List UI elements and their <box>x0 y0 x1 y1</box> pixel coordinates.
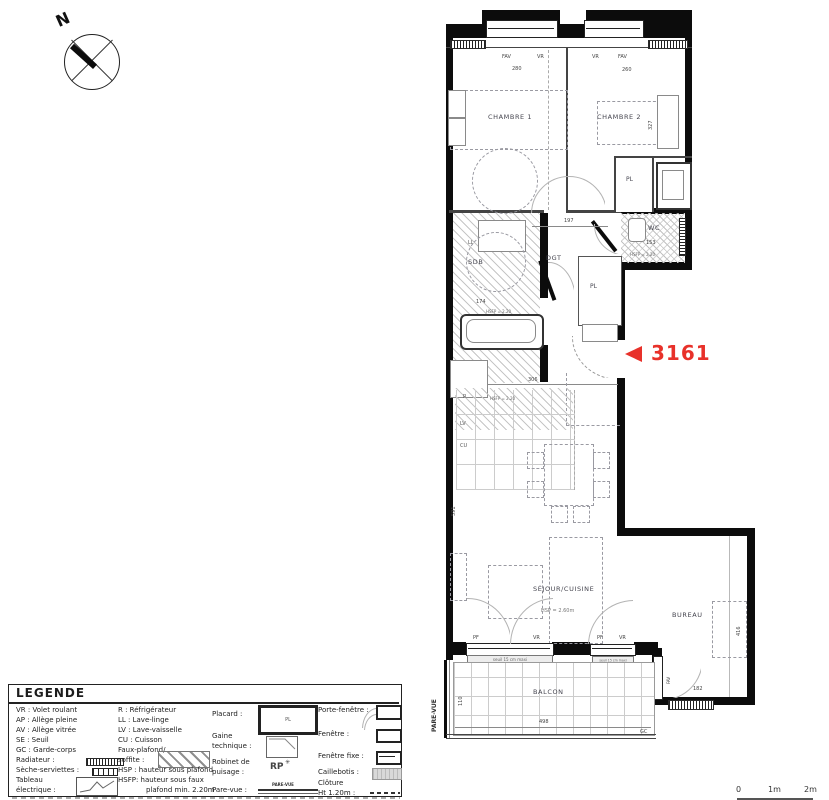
legend-item: Caillebotis : <box>318 768 359 776</box>
appliance-ll: LL <box>468 240 474 246</box>
truncated-note-line <box>12 797 400 799</box>
radiator <box>668 700 714 710</box>
room-label-balcon: BALCON <box>533 688 564 696</box>
furniture-outline <box>448 118 466 146</box>
legend-title-rule <box>9 702 399 704</box>
legend-item: technique : <box>212 742 252 750</box>
window-tag-vr: VR <box>592 54 599 60</box>
closet-pl-hall-label: PL <box>590 283 597 290</box>
wall-sdb-right <box>540 345 548 382</box>
caillebotis-symbol <box>372 768 402 780</box>
window-tag-fav: FAV <box>502 54 511 60</box>
pare-vue-symbol-line <box>258 793 318 794</box>
fenetre-symbol <box>376 729 402 743</box>
rp-valve-icon: ✳ <box>285 759 290 766</box>
partition-pl <box>652 158 654 212</box>
hsfp-note: HSFP = 2.20 <box>630 252 655 257</box>
closet-pl-top <box>616 158 652 212</box>
towel-radiator-symbol <box>92 768 118 776</box>
legend-item: puisage : <box>212 768 244 776</box>
room-label-dgt: DGT <box>546 254 562 262</box>
porte-fenetre-symbol <box>376 705 402 720</box>
lot-marker-arrow-icon <box>625 346 642 362</box>
dim-line <box>455 727 651 728</box>
roller-shutter-box <box>450 40 486 49</box>
legend-item: AP : Allège pleine <box>16 716 77 724</box>
window-glass-line <box>592 648 632 649</box>
door-arc <box>594 224 626 254</box>
dim-wc: 153 <box>646 240 656 246</box>
roller-shutter-box <box>648 40 688 49</box>
legend-item: AV : Allège vitrée <box>16 726 76 734</box>
scale-1m: 1m <box>768 785 781 794</box>
balcony-edge <box>446 734 656 735</box>
appliance-cu: CU <box>460 443 467 449</box>
floor-plan-page: { "compass": { "north": "N" }, "marker":… <box>0 0 829 800</box>
cloture-symbol <box>370 792 400 794</box>
compass-north-label: N <box>53 8 73 31</box>
compass: N <box>48 8 124 88</box>
scale-0: 0 <box>736 785 741 794</box>
legend-title: LEGENDE <box>16 686 85 700</box>
wc-toilet <box>628 218 646 242</box>
legend-item: Placard : <box>212 710 242 718</box>
furniture-tv <box>450 553 467 601</box>
bathtub-inner <box>466 319 536 343</box>
appliance-r: R <box>463 394 466 400</box>
pare-vue-line <box>449 660 450 738</box>
dim-line <box>532 226 608 227</box>
hsfp-note: HSFP = 2.20 <box>490 396 515 401</box>
window-chambre2 <box>584 20 644 38</box>
window-glass-line <box>468 648 550 649</box>
scale-2m: 2m <box>804 785 817 794</box>
legend-item: R : Réfrigérateur <box>118 706 176 714</box>
window-chambre1 <box>486 20 558 38</box>
legend-item: Pare-vue : <box>212 786 247 794</box>
balcony-floor <box>453 662 655 736</box>
furniture-chair <box>573 506 590 523</box>
pare-vue-label: PARE-VUE <box>431 668 438 732</box>
window-dim: 260 <box>622 67 632 73</box>
legend-item: soffite : <box>118 756 144 764</box>
dim-bureau-desk: 416 <box>736 616 742 636</box>
turning-circle <box>472 148 538 214</box>
gaine-notch-icon <box>267 737 297 757</box>
room-label-sejour: SÉJOUR/CUISINE <box>533 585 594 593</box>
window-tag-fav: FAV <box>618 54 627 60</box>
door-arc <box>548 262 574 300</box>
legend-item: LV : Lave-vaisselle <box>118 726 182 734</box>
bureau-window-tag: FAV <box>666 668 671 684</box>
dim-sejour: 591 <box>451 494 457 516</box>
legend-item: Tableau <box>16 776 43 784</box>
pare-vue-symbol-line <box>258 789 318 791</box>
dim-balcon-h: 110 <box>458 690 464 706</box>
dim-balcon-w: 498 <box>539 719 549 725</box>
lot-number: 3161 <box>651 341 711 365</box>
legend-item: Ht 1.20m : <box>318 789 355 797</box>
furniture-table <box>544 444 594 506</box>
room-label-wc: WC <box>648 224 660 232</box>
pare-vue-symbol: PARE-VUE <box>258 783 318 795</box>
legend-item: LL : Lave-linge <box>118 716 169 724</box>
wall-south <box>446 642 466 655</box>
legend-item: électrique : <box>16 786 56 794</box>
wall-wc-bottom <box>621 262 692 270</box>
window-tag-vr: VR <box>537 54 544 60</box>
electrical-panel-symbol <box>76 777 118 796</box>
legend-item: plafond min. 2.20m <box>146 786 215 794</box>
wall-mid-right <box>617 378 625 535</box>
wall-bureau-right <box>747 528 755 705</box>
porte-fenetre-2 <box>590 644 636 656</box>
legend-item: Fenêtre fixe : <box>318 752 364 760</box>
fenetre-fixe-symbol <box>376 751 402 765</box>
furniture-chair <box>593 452 610 469</box>
legend-item: Radiateur : <box>16 756 55 764</box>
legend-item: Robinet de <box>212 758 250 766</box>
window-glass-line <box>586 28 640 29</box>
furniture-chair <box>527 452 544 469</box>
zigzag-icon <box>77 778 117 795</box>
shower-inner <box>662 170 684 200</box>
room-label-bureau: BUREAU <box>672 611 703 619</box>
entry-door-arc <box>572 336 618 378</box>
door-arc <box>588 600 633 644</box>
legend-item: Clôture <box>318 779 343 787</box>
legend-item: SE : Seuil <box>16 736 49 744</box>
legend-item: Sèche-serviettes : <box>16 766 79 774</box>
gaine-symbol <box>266 736 298 758</box>
rp-symbol: RP <box>270 762 284 772</box>
dim-hall: 197 <box>564 218 574 224</box>
furniture-outline <box>657 95 679 149</box>
wall-bureau-top <box>617 528 755 536</box>
legend-item: VR : Volet roulant <box>16 706 77 714</box>
dim-sdb: 174 <box>476 299 486 305</box>
furniture-outline <box>597 101 661 145</box>
door-arc <box>510 598 553 644</box>
closet-pl-hall <box>578 256 622 326</box>
window-glass-line <box>488 28 554 29</box>
legend-item: CU : Cuisson <box>118 736 162 744</box>
placard-symbol-label: PL <box>285 717 291 723</box>
legend-item: HSP : hauteur sous plafond <box>118 766 213 774</box>
legend-item: GC : Garde-corps <box>16 746 76 754</box>
pare-vue-screen <box>444 660 447 738</box>
door-arc <box>531 176 605 213</box>
scale-bar: 0 1m 2m <box>730 785 825 800</box>
closet-pl-label: PL <box>626 176 633 183</box>
door-arc <box>467 598 510 644</box>
towel-radiator <box>679 218 686 256</box>
appliance-lv: LV <box>460 421 466 427</box>
wall-top <box>446 24 692 38</box>
window-dim: 280 <box>512 66 522 72</box>
furniture-outline <box>448 90 466 118</box>
placard-symbol: PL <box>258 705 318 735</box>
furniture-chair <box>527 481 544 498</box>
room-label-sdb: SDB <box>468 258 483 266</box>
fenetre-fixe-line <box>379 756 395 757</box>
legend-item: Porte-fenêtre : <box>318 706 369 714</box>
dim-kitchen: 306 <box>528 377 538 383</box>
furniture-chair <box>551 506 568 523</box>
legend-item: Fenêtre : <box>318 730 349 738</box>
pare-vue-symbol-label: PARE-VUE <box>272 782 294 787</box>
furniture-chair <box>593 481 610 498</box>
furniture-outline <box>450 90 568 150</box>
fenetre-symbol-arc <box>364 714 376 730</box>
wall-right-upper <box>685 24 692 270</box>
legend-item: Gaine <box>212 732 232 740</box>
balcony-edge <box>446 738 656 739</box>
legend-item: HSFP: hauteur sous faux <box>118 776 204 784</box>
